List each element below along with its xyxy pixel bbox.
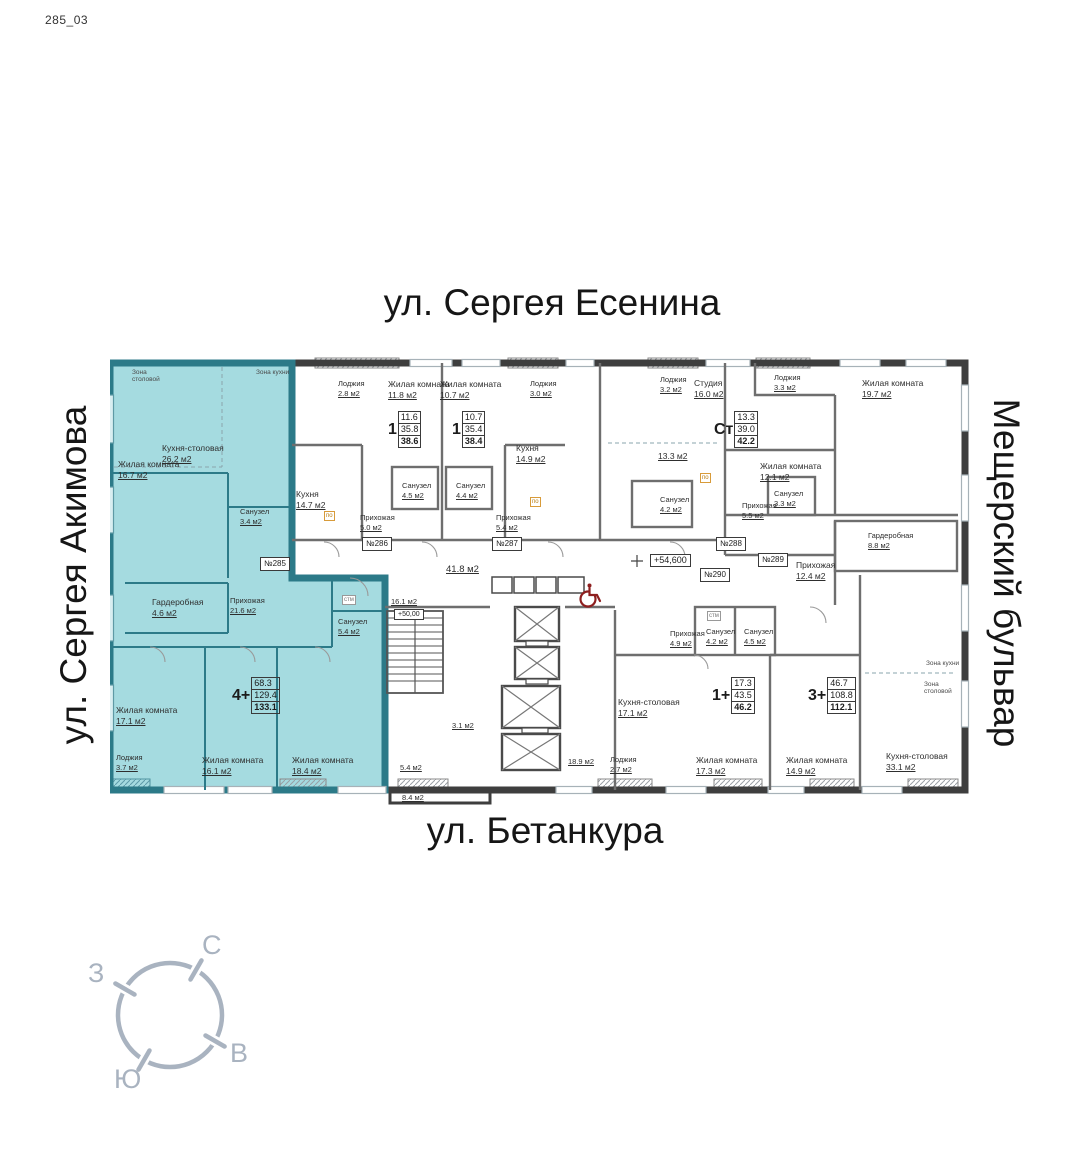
room-name: Жилая комната <box>760 461 821 472</box>
total-area: 38.4 <box>462 435 486 448</box>
room-label: 13.3 м2 <box>658 451 687 462</box>
apartment-number-287[interactable]: №287 <box>492 537 522 551</box>
room-name: Лоджия <box>774 373 801 383</box>
room-label: 18.9 м2 <box>568 757 594 767</box>
room-label: Жилая комната16.1 м2 <box>202 755 263 777</box>
floorplan-sheet: 285_03 ул. Сергея Есенина ул. Сергея Аки… <box>0 0 1080 1152</box>
room-area: 19.7 м2 <box>862 389 923 400</box>
room-label: Лоджия2.8 м2 <box>338 379 365 399</box>
apartment-type: Ст <box>714 421 733 439</box>
room-area: 5.4 м2 <box>496 523 531 533</box>
room-area: 3.0 м2 <box>530 389 557 399</box>
floor-plan-drawing <box>110 355 970 807</box>
room-name: Жилая комната <box>440 379 501 390</box>
room-label: Жилая комната10.7 м2 <box>440 379 501 401</box>
room-area: 10.7 м2 <box>440 390 501 401</box>
elevator-shafts <box>502 607 560 770</box>
room-area: 16.0 м2 <box>694 389 723 400</box>
total-area: 42.2 <box>734 435 758 448</box>
dishwasher-marker: по <box>324 511 335 521</box>
street-label-top: ул. Сергея Есенина <box>384 282 721 324</box>
total-area: 133.1 <box>251 701 280 714</box>
total-area: 38.6 <box>398 435 422 448</box>
room-name: Жилая комната <box>786 755 847 766</box>
room-label: Жилая комната17.3 м2 <box>696 755 757 777</box>
room-label: Кухня-столовая17.1 м2 <box>618 697 680 719</box>
apartment-plate-285[interactable]: 4+ 68.3129.4133.1 <box>232 677 280 714</box>
dishwasher-marker: по <box>530 497 541 507</box>
room-area: 16.1 м2 <box>391 597 417 607</box>
room-area: 16.1 м2 <box>202 766 263 777</box>
room-label: Студия16.0 м2 <box>694 378 723 400</box>
room-label: 3.1 м2 <box>452 721 474 731</box>
apartment-number-289[interactable]: №289 <box>758 553 788 567</box>
room-label: Кухня14.7 м2 <box>296 489 325 511</box>
room-area: 4.6 м2 <box>152 608 203 619</box>
apartment-type: 3+ <box>808 687 826 705</box>
room-label: Санузел3.4 м2 <box>240 507 269 527</box>
room-label: Жилая комната12.1 м2 <box>760 461 821 483</box>
room-name: Гардеробная <box>152 597 203 608</box>
room-area: 18.4 м2 <box>292 766 353 777</box>
street-label-bottom: ул. Бетанкура <box>427 810 664 852</box>
room-name: Санузел <box>338 617 367 627</box>
room-name: Зона кухни <box>926 660 964 667</box>
room-area: 3.1 м2 <box>452 721 474 731</box>
room-name: Жилая комната <box>118 459 179 470</box>
total-area: 46.2 <box>731 701 755 714</box>
room-name: Санузел <box>402 481 431 491</box>
room-area: 3.7 м2 <box>116 763 143 773</box>
apartment-plate-288[interactable]: Ст 13.339.042.2 <box>714 411 758 448</box>
street-label-left: ул. Сергея Акимова <box>53 406 95 745</box>
room-area: 4.5 м2 <box>744 637 773 647</box>
apartment-number-285[interactable]: №285 <box>260 557 290 571</box>
compass-east-label: В <box>230 1038 248 1068</box>
apartment-type: 4+ <box>232 687 250 705</box>
room-area: 5.4 м2 <box>338 627 367 637</box>
room-label: Зона кухни <box>256 369 294 376</box>
room-area: 2.8 м2 <box>338 389 365 399</box>
room-name: Кухня <box>516 443 545 454</box>
apartment-number-286[interactable]: №286 <box>362 537 392 551</box>
room-label: Санузел5.4 м2 <box>338 617 367 637</box>
room-label: Лоджия3.3 м2 <box>774 373 801 393</box>
room-label: Лоджия2.7 м2 <box>610 755 637 775</box>
room-area: 14.9 м2 <box>786 766 847 777</box>
elevation-mark: +54,600 <box>650 554 691 567</box>
room-name: Лоджия <box>610 755 637 765</box>
room-name: Лоджия <box>530 379 557 389</box>
room-label: Лоджия3.7 м2 <box>116 753 143 773</box>
apartment-number-288[interactable]: №288 <box>716 537 746 551</box>
room-name: Санузел <box>706 627 735 637</box>
room-area: 2.7 м2 <box>610 765 637 775</box>
room-label: Жилая комната16.7 м2 <box>118 459 179 481</box>
room-area: 5.0 м2 <box>360 523 395 533</box>
total-area: 112.1 <box>827 701 856 714</box>
apartment-type: 1 <box>388 421 397 439</box>
room-name: Зона столовой <box>924 681 962 696</box>
room-area: 5.4 м2 <box>400 763 422 773</box>
room-name: Жилая комната <box>202 755 263 766</box>
sheet-code: 285_03 <box>45 13 88 27</box>
elevator-lobby-cabinets <box>492 577 584 593</box>
room-name: Кухня-столовая <box>162 443 224 454</box>
room-area: 4.4 м2 <box>456 491 485 501</box>
compass-west-label: З <box>88 958 104 988</box>
room-area: 3.3 м2 <box>774 383 801 393</box>
apartment-plate-290[interactable]: 1+ 17.343.546.2 <box>712 677 755 714</box>
room-label: 8.4 м2 <box>402 793 424 803</box>
apartment-type: 1 <box>452 421 461 439</box>
stairwell-area-label: 16.1 м2 <box>391 597 417 607</box>
room-name: Кухня-столовая <box>618 697 680 708</box>
compass-south-label: Ю <box>114 1064 141 1092</box>
room-area: 14.7 м2 <box>296 500 325 511</box>
street-label-right: Мещерский бульвар <box>985 399 1027 748</box>
room-name: Кухня-столовая <box>886 751 948 762</box>
room-label: Зона кухни <box>926 660 964 667</box>
room-label: Лоджия3.0 м2 <box>530 379 557 399</box>
room-label: Лоджия3.2 м2 <box>660 375 687 395</box>
room-label: Санузел4.5 м2 <box>402 481 431 501</box>
room-label: Прихожая21.6 м2 <box>230 596 265 616</box>
room-area: 4.9 м2 <box>670 639 705 649</box>
room-label: Прихожая5.5 м2 <box>742 501 777 521</box>
room-name: Жилая комната <box>292 755 353 766</box>
room-name: Прихожая <box>230 596 265 606</box>
room-area: 17.3 м2 <box>696 766 757 777</box>
room-label: Прихожая4.9 м2 <box>670 629 705 649</box>
apartment-plate-287[interactable]: 1 10.735.438.4 <box>452 411 485 448</box>
room-name: Лоджия <box>116 753 143 763</box>
room-name: Лоджия <box>660 375 687 385</box>
room-label: Прихожая5.0 м2 <box>360 513 395 533</box>
compass: С З Ю В <box>86 920 261 1092</box>
room-area: 41.8 м2 <box>446 564 479 576</box>
stair-elevation-mark: +50,00 <box>394 609 424 620</box>
room-label: Прихожая12.4 м2 <box>796 560 835 582</box>
room-area: 3.4 м2 <box>240 517 269 527</box>
compass-north-label: С <box>202 930 222 960</box>
room-label: Жилая комната14.9 м2 <box>786 755 847 777</box>
apartment-number-290[interactable]: №290 <box>700 568 730 582</box>
room-area: 4.5 м2 <box>402 491 431 501</box>
room-name: Гардеробная <box>868 531 913 541</box>
room-area: 14.9 м2 <box>516 454 545 465</box>
room-area: 18.9 м2 <box>568 757 594 767</box>
room-label: Санузел3.3 м2 <box>774 489 803 509</box>
apartment-type: 1+ <box>712 687 730 705</box>
room-name: Санузел <box>660 495 689 505</box>
room-label: Зона столовой <box>132 369 170 384</box>
room-name: Прихожая <box>670 629 705 639</box>
room-name: Зона кухни <box>256 369 294 376</box>
washer-marker: стм <box>707 611 721 621</box>
room-name: Санузел <box>456 481 485 491</box>
room-area: 21.6 м2 <box>230 606 265 616</box>
room-label: Санузел4.4 м2 <box>456 481 485 501</box>
room-name: Жилая комната <box>116 705 177 716</box>
room-name: Зона столовой <box>132 369 170 384</box>
compass-ring <box>118 963 222 1067</box>
room-name: Студия <box>694 378 723 389</box>
elevation-cross <box>631 555 643 567</box>
stairwell <box>387 611 443 693</box>
room-label: Гардеробная4.6 м2 <box>152 597 203 619</box>
apartment-plate-289[interactable]: 3+ 46.7108.8112.1 <box>808 677 856 714</box>
room-area: 16.7 м2 <box>118 470 179 481</box>
apartment-plate-286[interactable]: 1 11.635.838.6 <box>388 411 421 448</box>
room-label: Санузел4.2 м2 <box>660 495 689 515</box>
room-label: Жилая комната19.7 м2 <box>862 378 923 400</box>
room-label: Санузел4.5 м2 <box>744 627 773 647</box>
room-area: 12.4 м2 <box>796 571 835 582</box>
room-area: 4.2 м2 <box>706 637 735 647</box>
room-name: Кухня <box>296 489 325 500</box>
room-label: Кухня14.9 м2 <box>516 443 545 465</box>
room-name: Прихожая <box>496 513 531 523</box>
room-name: Прихожая <box>742 501 777 511</box>
room-name: Прихожая <box>360 513 395 523</box>
room-area: 12.1 м2 <box>760 472 821 483</box>
room-area: 17.1 м2 <box>116 716 177 727</box>
room-label: Кухня-столовая33.1 м2 <box>886 751 948 773</box>
room-name: Прихожая <box>796 560 835 571</box>
room-area: 8.8 м2 <box>868 541 913 551</box>
room-area: 8.4 м2 <box>402 793 424 803</box>
room-label: Прихожая5.4 м2 <box>496 513 531 533</box>
dishwasher-marker: по <box>700 473 711 483</box>
room-label: Зона столовой <box>924 681 962 696</box>
room-area: 17.1 м2 <box>618 708 680 719</box>
room-area: 3.2 м2 <box>660 385 687 395</box>
room-name: Санузел <box>774 489 803 499</box>
room-label: Жилая комната17.1 м2 <box>116 705 177 727</box>
room-label: Жилая комната18.4 м2 <box>292 755 353 777</box>
corridor-area-label: 41.8 м2 <box>446 564 479 576</box>
room-area: 4.2 м2 <box>660 505 689 515</box>
room-area: 13.3 м2 <box>658 451 687 462</box>
room-area: 33.1 м2 <box>886 762 948 773</box>
room-label: 5.4 м2 <box>400 763 422 773</box>
washer-marker: стм <box>342 595 356 605</box>
room-area: 5.5 м2 <box>742 511 777 521</box>
room-name: Санузел <box>240 507 269 517</box>
floor-plan: Зона столовой Зона кухни Кухня-столовая2… <box>110 355 970 807</box>
room-name: Жилая комната <box>862 378 923 389</box>
room-name: Санузел <box>744 627 773 637</box>
room-label: Гардеробная8.8 м2 <box>868 531 913 551</box>
room-name: Жилая комната <box>696 755 757 766</box>
room-area: 3.3 м2 <box>774 499 803 509</box>
room-label: Санузел4.2 м2 <box>706 627 735 647</box>
room-name: Лоджия <box>338 379 365 389</box>
